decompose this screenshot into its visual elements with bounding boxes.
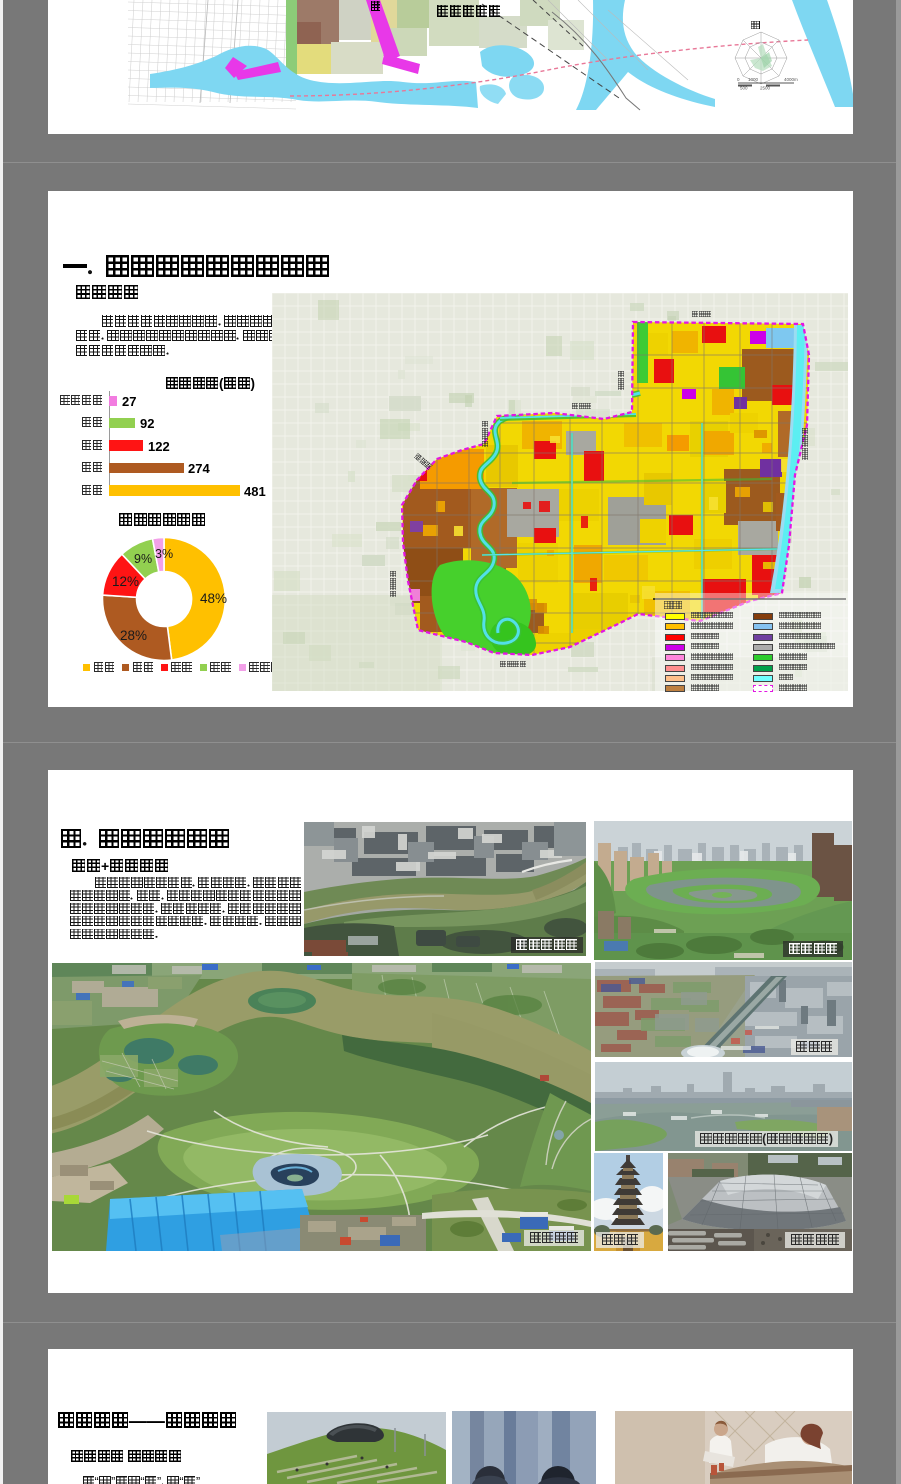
svg-text:500: 500 <box>740 86 748 91</box>
svg-text:2500: 2500 <box>760 86 771 91</box>
svg-text:1000: 1000 <box>748 77 759 82</box>
svg-text:4000m: 4000m <box>784 77 798 82</box>
svg-text:0: 0 <box>737 77 740 82</box>
